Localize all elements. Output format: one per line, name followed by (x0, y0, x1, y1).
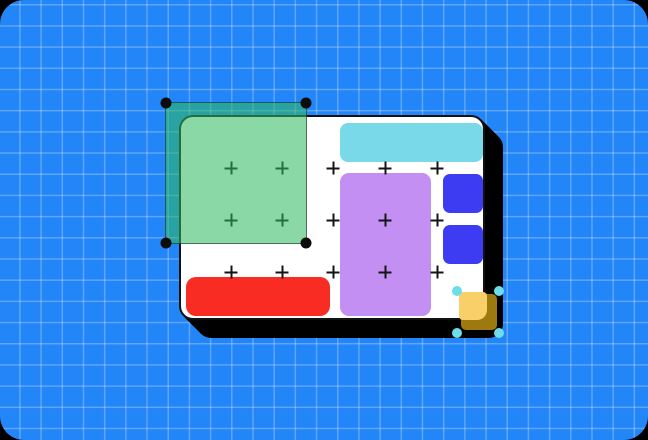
cyan-banner-shape[interactable] (340, 123, 483, 162)
resize-handle-top-right-icon[interactable] (494, 286, 504, 296)
selection-handle-top-left-icon[interactable] (161, 98, 172, 109)
plus-marker-icon (431, 214, 444, 227)
plus-marker-icon (276, 266, 289, 279)
indigo-square-shape-1[interactable] (443, 174, 483, 213)
plus-marker-icon (431, 162, 444, 175)
purple-panel-shape[interactable] (340, 173, 431, 316)
selection-handle-top-right-icon[interactable] (301, 98, 312, 109)
plus-marker-icon (225, 266, 238, 279)
plus-marker-icon (379, 214, 392, 227)
red-bar-shape[interactable] (186, 277, 330, 316)
selection-overlay[interactable] (165, 102, 307, 244)
selection-handle-bottom-right-icon[interactable] (301, 238, 312, 249)
resize-handle-top-left-icon[interactable] (452, 286, 462, 296)
resize-handle-bottom-right-icon[interactable] (494, 328, 504, 338)
plus-marker-icon (327, 214, 340, 227)
plus-marker-icon (379, 162, 392, 175)
plus-marker-icon (431, 266, 444, 279)
plus-marker-icon (379, 266, 392, 279)
resize-handle-bottom-left-icon[interactable] (452, 328, 462, 338)
design-canvas (0, 0, 648, 440)
gold-shape-front[interactable] (459, 292, 487, 320)
indigo-square-shape-2[interactable] (443, 225, 483, 264)
plus-marker-icon (327, 162, 340, 175)
selection-handle-bottom-left-icon[interactable] (161, 238, 172, 249)
plus-marker-icon (327, 266, 340, 279)
